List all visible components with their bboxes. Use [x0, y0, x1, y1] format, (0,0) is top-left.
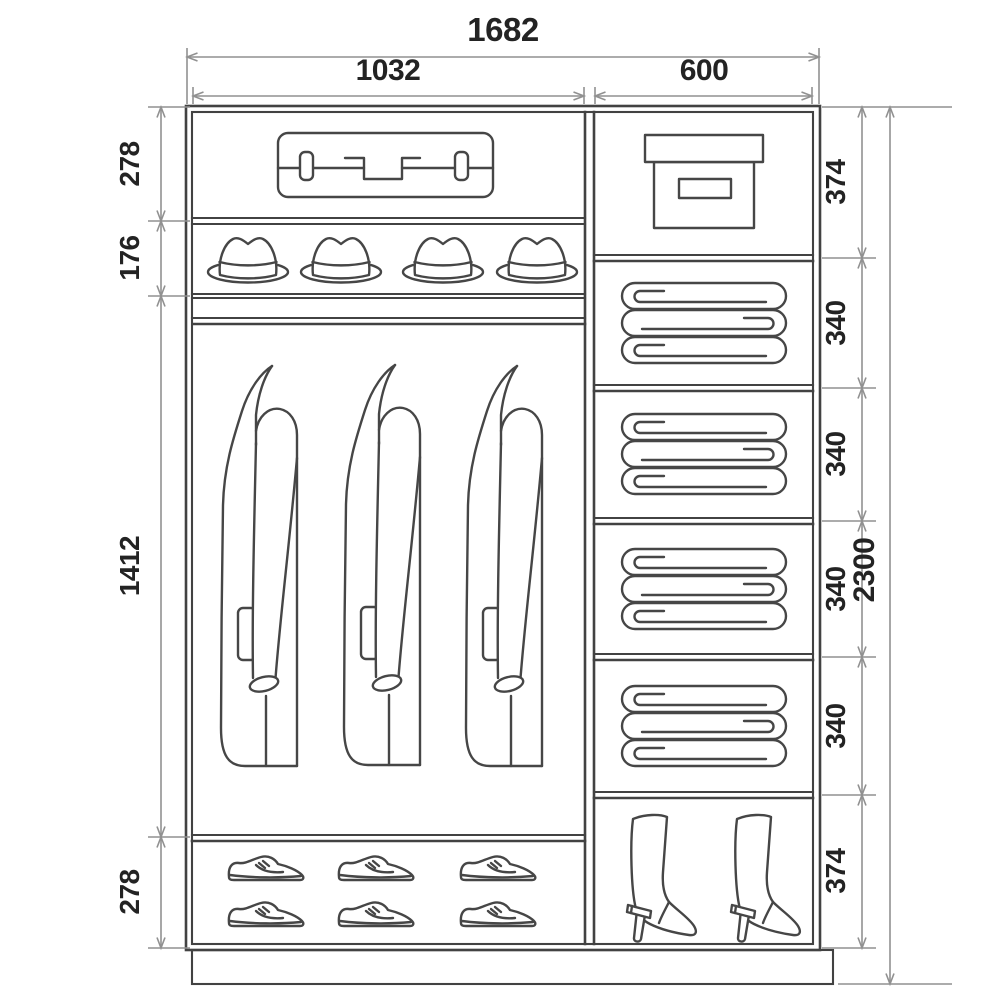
shoe-icon	[229, 902, 303, 926]
coat-icon	[466, 366, 542, 766]
dimension-right-heights: 374 340 340 340 340 374	[820, 107, 952, 948]
boot-icon	[627, 815, 696, 942]
storage-box-icon	[645, 135, 763, 228]
shoe-icon	[461, 902, 535, 926]
dimension-section-widths: 1032 600	[193, 54, 812, 104]
dimension-total-height: 2300	[838, 107, 952, 984]
folded-linen-icon	[622, 549, 786, 629]
dim-label-left-3: 278	[114, 869, 145, 914]
dim-label-right-0: 374	[820, 158, 851, 204]
compartment-hats	[208, 238, 577, 282]
coat-icon	[344, 365, 420, 765]
compartment-storage-box	[645, 135, 763, 228]
hat-icon	[497, 238, 577, 282]
compartment-suitcase	[278, 133, 493, 197]
folded-linen-icon	[622, 283, 786, 363]
shoe-icon	[229, 856, 303, 880]
folded-linen-icon	[622, 414, 786, 494]
hat-icon	[208, 238, 288, 282]
compartment-boots	[627, 815, 800, 942]
dimension-left-heights: 278 176 1412 278	[114, 107, 190, 948]
shoe-icon	[461, 856, 535, 880]
compartment-shoes	[229, 856, 535, 926]
boot-icon	[731, 815, 800, 942]
dim-label-right-4: 340	[820, 703, 851, 748]
dim-label-right-width: 600	[680, 54, 729, 87]
dim-label-left-2: 1412	[114, 536, 145, 596]
hat-icon	[301, 238, 381, 282]
suitcase-icon	[278, 133, 493, 197]
shoe-icon	[339, 902, 413, 926]
dim-label-right-3: 340	[820, 566, 851, 611]
diagram-canvas: 1682 1032 600 278 176 1412 278	[0, 0, 1000, 1000]
shoe-icon	[339, 856, 413, 880]
hat-icon	[403, 238, 483, 282]
dim-label-right-2: 340	[820, 431, 851, 476]
compartment-hanging-coats	[221, 365, 542, 766]
coat-icon	[221, 366, 297, 766]
dim-label-right-5: 374	[820, 847, 851, 893]
dim-label-left-width: 1032	[356, 54, 421, 87]
dim-label-left-1: 176	[114, 235, 145, 280]
dim-label-total-width: 1682	[467, 11, 539, 48]
dim-label-left-0: 278	[114, 141, 145, 186]
dim-label-right-1: 340	[820, 300, 851, 345]
dim-label-total-height: 2300	[848, 538, 881, 603]
plinth-base	[192, 950, 833, 984]
wardrobe-dimension-diagram: 1682 1032 600 278 176 1412 278	[0, 0, 1000, 1000]
folded-linen-icon	[622, 686, 786, 766]
